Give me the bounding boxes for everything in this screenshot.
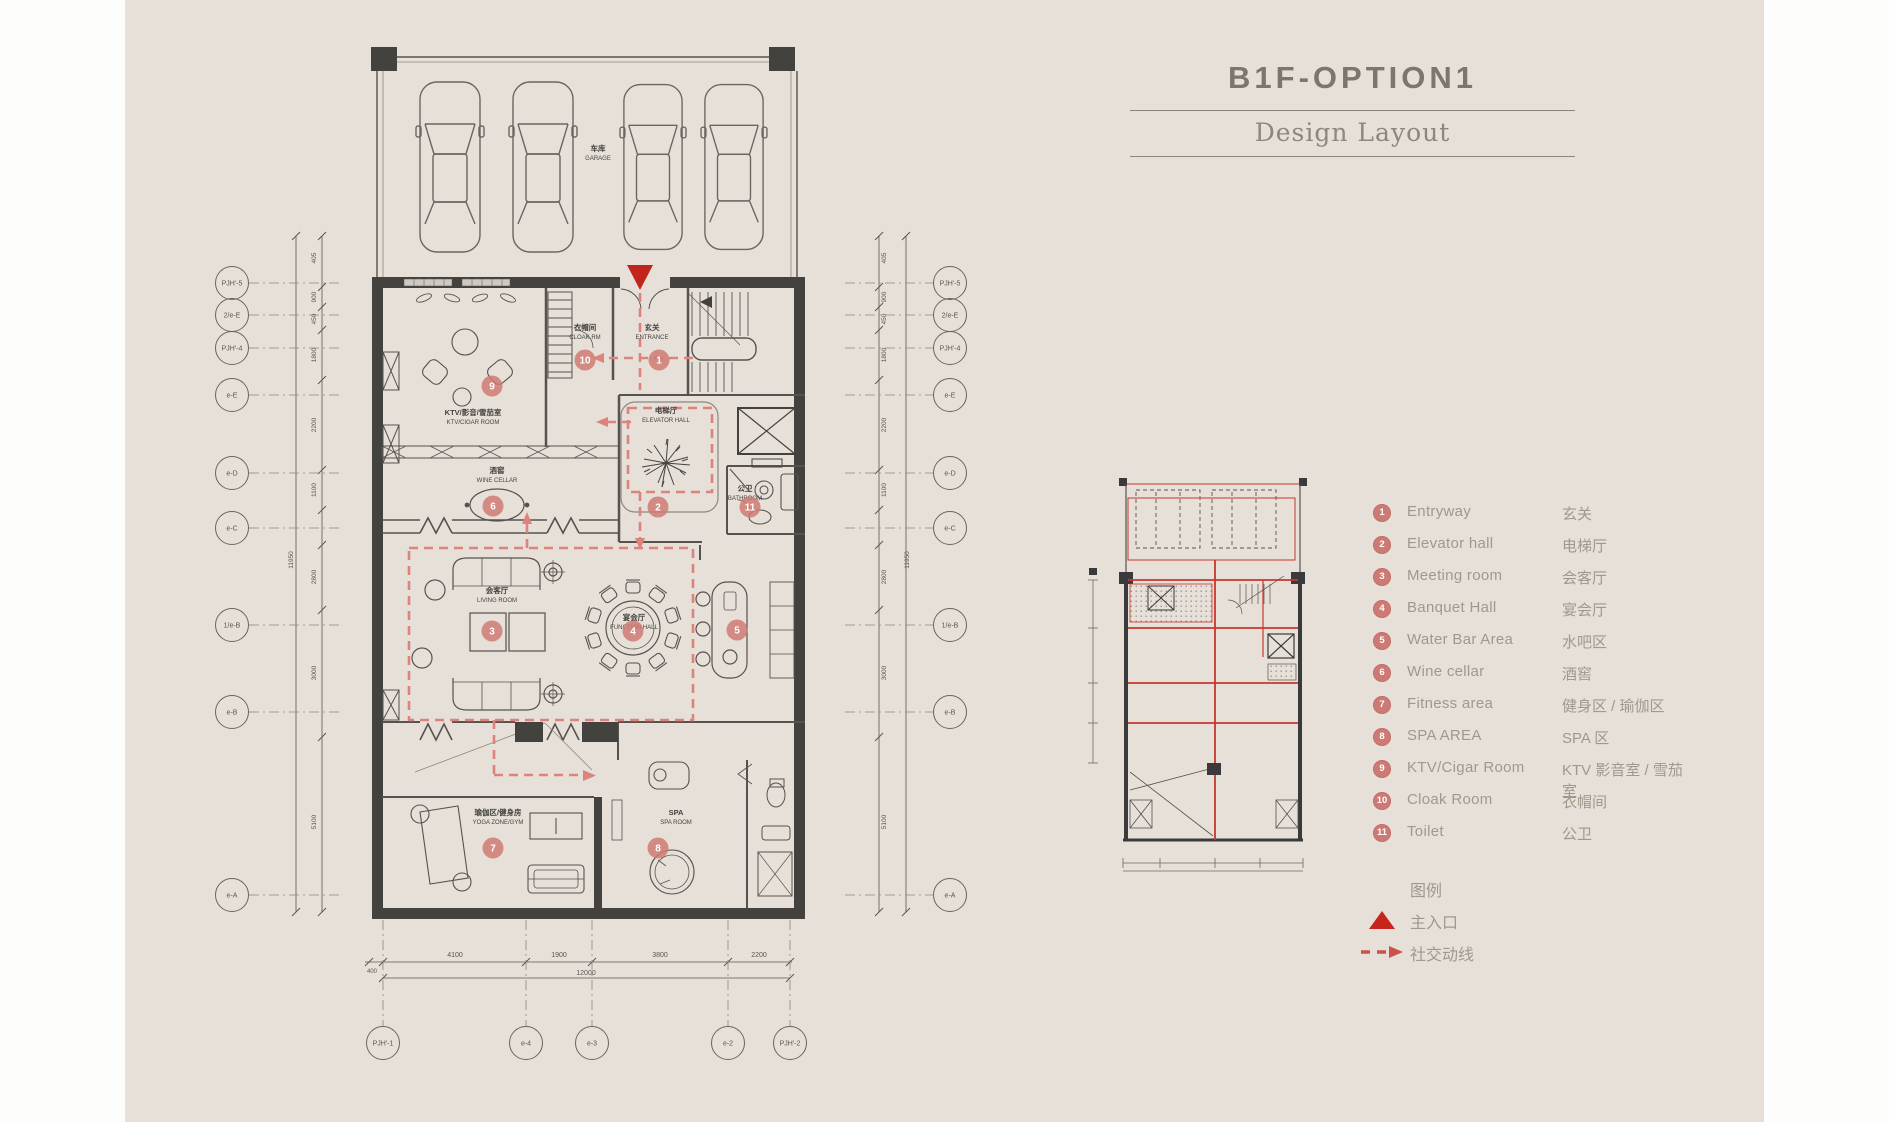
circulation-arrowheads: [522, 353, 645, 781]
svg-text:e-B: e-B: [945, 710, 956, 717]
folding-partition: [420, 518, 452, 533]
grid-bubble: e-D: [934, 457, 967, 490]
grid-bubble: e-C: [934, 512, 967, 545]
legend-label-en: KTV/Cigar Room: [1407, 759, 1525, 776]
legend-number-badge: 10: [1373, 792, 1391, 810]
svg-text:PJH'-5: PJH'-5: [222, 281, 243, 288]
grid-bubble: e-A: [934, 879, 967, 912]
legend-number-badge: 9: [1373, 760, 1391, 778]
parked-cars: [416, 82, 767, 252]
legend-number-badge: 6: [1373, 664, 1391, 682]
legend-label-cn: SPA 区: [1562, 727, 1609, 748]
svg-text:7: 7: [490, 844, 496, 855]
chair-icon: [648, 652, 667, 671]
wall-block: [515, 722, 543, 742]
svg-text:e-C: e-C: [944, 526, 955, 533]
room-label-en: LIVING ROOM: [477, 598, 517, 604]
svg-text:e-B: e-B: [227, 710, 238, 717]
chair-icon: [599, 652, 618, 671]
dimension-text: 2800: [311, 569, 318, 584]
svg-text:PJH'-2: PJH'-2: [780, 1041, 801, 1048]
chair-icon: [664, 607, 681, 624]
room-label-en: WINE CELLAR: [477, 478, 518, 484]
room-label-cn: 酒窖: [490, 465, 505, 475]
chair-icon: [585, 607, 602, 624]
legend-item: 9KTV/Cigar RoomKTV 影音室 / 雪茄室: [1365, 753, 1695, 785]
staircase: [689, 292, 756, 392]
dimension-text: 5100: [311, 814, 318, 829]
legend-label-cn: 电梯厅: [1562, 535, 1607, 556]
symbol-key: 图例 主入口 社交动线: [1355, 872, 1655, 968]
ceiling-target-icon: [541, 560, 565, 584]
svg-text:8: 8: [655, 844, 661, 855]
legend-label-en: Elevator hall: [1407, 535, 1493, 552]
legend-label-cn: 健身区 / 瑜伽区: [1562, 695, 1665, 716]
entrance-doors: [621, 289, 669, 309]
room-label-en: CLOAK RM: [569, 335, 600, 341]
dimension-text: 1100: [881, 483, 888, 497]
grid-bubble: e-E: [934, 379, 967, 412]
chair-icon: [585, 632, 602, 649]
legend-number-badge: 11: [1373, 824, 1391, 842]
car-icon: [509, 82, 577, 252]
grid-bubble: 2/e-E: [216, 299, 249, 332]
svg-text:11: 11: [745, 503, 756, 514]
legend-label-en: SPA AREA: [1407, 727, 1482, 744]
chair-icon: [626, 663, 640, 676]
key-heading-row: 图例: [1355, 872, 1655, 904]
legend-label-en: Toilet: [1407, 823, 1444, 840]
svg-text:e-E: e-E: [945, 393, 956, 400]
dimension-text: 1800: [881, 347, 888, 362]
title-rule: [1130, 156, 1575, 157]
svg-text:e-D: e-D: [226, 471, 237, 478]
legend-label-cn: 衣帽间: [1562, 791, 1607, 812]
room-label-cn: 会客厅: [486, 585, 509, 595]
legend-label-cn: 酒窖: [1562, 663, 1592, 684]
dimension-text: 2200: [881, 417, 888, 432]
room-marker: 3: [482, 621, 503, 642]
legend-number-badge: 2: [1373, 536, 1391, 554]
keyplan-parking: [1136, 490, 1276, 548]
room-label-en: YOGA ZONE/GYM: [473, 820, 524, 826]
grid-bubble: e-B: [934, 696, 967, 729]
plant-icon: [642, 439, 690, 487]
page-title: B1F-OPTION1: [1130, 60, 1575, 96]
dimension-text: 3000: [311, 665, 318, 680]
dimension-text: 2800: [881, 569, 888, 584]
svg-text:PJH'-4: PJH'-4: [940, 346, 961, 353]
svg-text:5: 5: [734, 626, 740, 637]
svg-text:2/e-E: 2/e-E: [224, 313, 241, 320]
svg-text:e-3: e-3: [587, 1041, 597, 1048]
legend-item: 3Meeting room会客厅: [1365, 561, 1695, 593]
room-label-en: GARAGE: [585, 156, 611, 162]
dimension-text: 5100: [881, 814, 888, 829]
grid-bubble: 1/e-B: [934, 609, 967, 642]
garage-corner-wall: [769, 47, 795, 71]
grid-bubble: PJH'-5: [934, 267, 967, 300]
ceiling-target-icon: [541, 682, 565, 706]
svg-text:e-C: e-C: [226, 526, 237, 533]
room-marker: 11: [740, 497, 761, 518]
room-marker: 8: [648, 838, 669, 859]
grid-bubble: PJH'-2: [774, 1027, 807, 1060]
dimension-text: 4100: [447, 952, 463, 959]
dimension-text: 405: [881, 252, 888, 263]
interior-walls: [382, 288, 805, 908]
room-label-en: ENTRANCE: [635, 335, 668, 341]
room-label-cn: 车库: [591, 143, 606, 153]
dimension-total-text: 11950: [904, 551, 911, 569]
dimension-text: 2200: [751, 952, 767, 959]
svg-text:10: 10: [579, 356, 591, 367]
dimension-total-text: 12000: [576, 970, 596, 977]
svg-text:1/e-B: 1/e-B: [224, 623, 241, 630]
svg-text:3: 3: [489, 627, 495, 638]
room-legend-list: 1Entryway玄关2Elevator hall电梯厅3Meeting roo…: [1365, 497, 1695, 849]
dimension-text: 2200: [311, 417, 318, 432]
legend-label-en: Wine cellar: [1407, 663, 1485, 680]
grid-bubble: PJH'-1: [367, 1027, 400, 1060]
dimension-text: 1800: [311, 347, 318, 362]
dimension-text: 400: [367, 969, 378, 975]
grid-bubble: e-E: [216, 379, 249, 412]
grid-bubble: e-4: [510, 1027, 543, 1060]
dimension-total-text: 11950: [288, 551, 295, 569]
circulation-symbol-icon: [1359, 940, 1405, 964]
room-marker: 5: [727, 620, 748, 641]
legend-item: 2Elevator hall电梯厅: [1365, 529, 1695, 561]
svg-text:e-A: e-A: [227, 893, 238, 900]
key-heading: 图例: [1410, 877, 1442, 901]
room-label-cn: 瑜伽区/健身房: [474, 807, 522, 817]
wall-niches: [383, 352, 399, 720]
legend-label-en: Fitness area: [1407, 695, 1493, 712]
car-icon: [416, 82, 484, 252]
legend-label-en: Cloak Room: [1407, 791, 1493, 808]
legend-item: 5Water Bar Area水吧区: [1365, 625, 1695, 657]
chair-icon: [648, 585, 667, 604]
key-entrance-label: 主入口: [1410, 909, 1458, 933]
svg-text:9: 9: [489, 382, 495, 393]
room-label-cn: 玄关: [645, 322, 660, 332]
room-label-en: SPA ROOM: [660, 820, 692, 826]
spa-furniture: [612, 762, 694, 894]
legend-item: 7Fitness area健身区 / 瑜伽区: [1365, 689, 1695, 721]
dimension-text: 1100: [311, 483, 318, 497]
legend-label-cn: 公卫: [1562, 823, 1592, 844]
svg-text:4: 4: [630, 627, 636, 638]
svg-text:PJH'-1: PJH'-1: [373, 1041, 394, 1048]
legend-label-en: Banquet Hall: [1407, 599, 1497, 616]
wall-block: [594, 797, 602, 908]
stair-direction-arrow: [700, 296, 712, 308]
main-entrance-triangle-icon: [627, 265, 653, 290]
legend-label-en: Water Bar Area: [1407, 631, 1513, 648]
keyplan-stair: [1228, 576, 1284, 614]
room-label-cn: 衣帽间: [574, 322, 597, 332]
grid-bubbles: PJH'-52/e-EPJH'-4e-Ee-De-C1/e-Be-Be-APJH…: [216, 267, 967, 1060]
grid-bubble: e-3: [576, 1027, 609, 1060]
legend-number-badge: 3: [1373, 568, 1391, 586]
room-label-cn: 电梯厅: [655, 405, 678, 415]
leaf-decor: [415, 292, 516, 304]
grid-bubble: e-D: [216, 457, 249, 490]
legend-number-badge: 8: [1373, 728, 1391, 746]
page-subtitle: Design Layout: [1130, 111, 1575, 156]
folding-partition: [547, 518, 579, 533]
room-label-cn: KTV/影音/雪茄室: [445, 407, 502, 417]
dimension-text: 900: [881, 291, 888, 302]
dimension-text: 3000: [881, 665, 888, 680]
grid-bubble: 2/e-E: [934, 299, 967, 332]
legend-label-cn: 宴会厅: [1562, 599, 1607, 620]
svg-text:1: 1: [656, 356, 662, 367]
svg-text:e-A: e-A: [945, 893, 956, 900]
room-label-cn: 宴会厅: [623, 612, 646, 622]
legend-label-cn: 会客厅: [1562, 567, 1607, 588]
room-label-en: ELEVATOR HALL: [642, 418, 690, 424]
dimension-text: 900: [311, 291, 318, 302]
room-label-en: KTV/CIGAR ROOM: [447, 420, 500, 426]
key-circulation-row: 社交动线: [1355, 936, 1655, 968]
svg-text:e-D: e-D: [944, 471, 955, 478]
key-circulation-label: 社交动线: [1410, 941, 1474, 965]
main-entrance-symbol-icon: [1359, 908, 1405, 932]
legend-label-en: Entryway: [1407, 503, 1471, 520]
legend-item: 4Banquet Hall宴会厅: [1365, 593, 1695, 625]
dimension-text: 1900: [551, 952, 567, 959]
car-icon: [620, 85, 686, 250]
chair-icon: [626, 580, 640, 593]
svg-text:6: 6: [490, 502, 496, 513]
room-marker: 10: [575, 350, 596, 371]
grid-bubble: e-2: [712, 1027, 745, 1060]
grid-bubble: PJH'-4: [216, 332, 249, 365]
legend-number-badge: 5: [1373, 632, 1391, 650]
legend-number-badge: 4: [1373, 600, 1391, 618]
room-marker: 7: [483, 838, 504, 859]
svg-text:2/e-E: 2/e-E: [942, 313, 959, 320]
svg-text:1/e-B: 1/e-B: [942, 623, 959, 630]
wine-cellar-band: [382, 446, 619, 458]
car-icon: [701, 85, 767, 250]
garage-corner-wall: [371, 47, 397, 71]
room-label-cn: 公卫: [738, 484, 753, 493]
legend-item: 10Cloak Room衣帽间: [1365, 785, 1695, 817]
grid-bubble: PJH'-5: [216, 267, 249, 300]
grid-bubble: e-A: [216, 879, 249, 912]
legend-label-en: Meeting room: [1407, 567, 1502, 584]
legend-item: 11Toilet公卫: [1365, 817, 1695, 849]
grid-bubble: PJH'-4: [934, 332, 967, 365]
svg-text:PJH'-4: PJH'-4: [222, 346, 243, 353]
room-label-cn: SPA: [669, 808, 684, 817]
key-plan-thumbnail: [1088, 478, 1307, 871]
legend-number-badge: 7: [1373, 696, 1391, 714]
outer-walls: [372, 277, 805, 919]
keyplan-lower-garage: [1130, 763, 1298, 836]
grid-bubble: 1/e-B: [216, 609, 249, 642]
dimension-text: 3800: [652, 952, 668, 959]
page: 车库GARAGEKTV/影音/雪茄室KTV/CIGAR ROOM衣帽间CLOAK…: [0, 0, 1889, 1122]
room-marker: 2: [648, 497, 669, 518]
svg-text:2: 2: [655, 503, 661, 514]
legend-label-cn: 玄关: [1562, 503, 1592, 524]
key-entrance-row: 主入口: [1355, 904, 1655, 936]
dimension-text: 405: [311, 252, 318, 263]
room-marker: 6: [483, 496, 504, 517]
garage: [371, 47, 797, 280]
legend-label-cn: 水吧区: [1562, 631, 1607, 652]
elevator-shaft: [738, 408, 795, 467]
svg-text:PJH'-5: PJH'-5: [940, 281, 961, 288]
legend-item: 8SPA AREASPA 区: [1365, 721, 1695, 753]
grid-bubble: e-C: [216, 512, 249, 545]
wall-block: [582, 722, 618, 742]
room-marker: 9: [482, 376, 503, 397]
legend-number-badge: 1: [1373, 504, 1391, 522]
chair-icon: [599, 585, 618, 604]
svg-text:e-2: e-2: [723, 1041, 733, 1048]
legend-item: 1Entryway玄关: [1365, 497, 1695, 529]
title-block: B1F-OPTION1 Design Layout: [1130, 60, 1575, 157]
legend-item: 6Wine cellar酒窖: [1365, 657, 1695, 689]
svg-text:e-E: e-E: [227, 393, 238, 400]
svg-text:e-4: e-4: [521, 1041, 531, 1048]
room-marker: 4: [623, 621, 644, 642]
chair-icon: [664, 632, 681, 649]
grid-bubble: e-B: [216, 696, 249, 729]
room-marker: 1: [649, 350, 670, 371]
